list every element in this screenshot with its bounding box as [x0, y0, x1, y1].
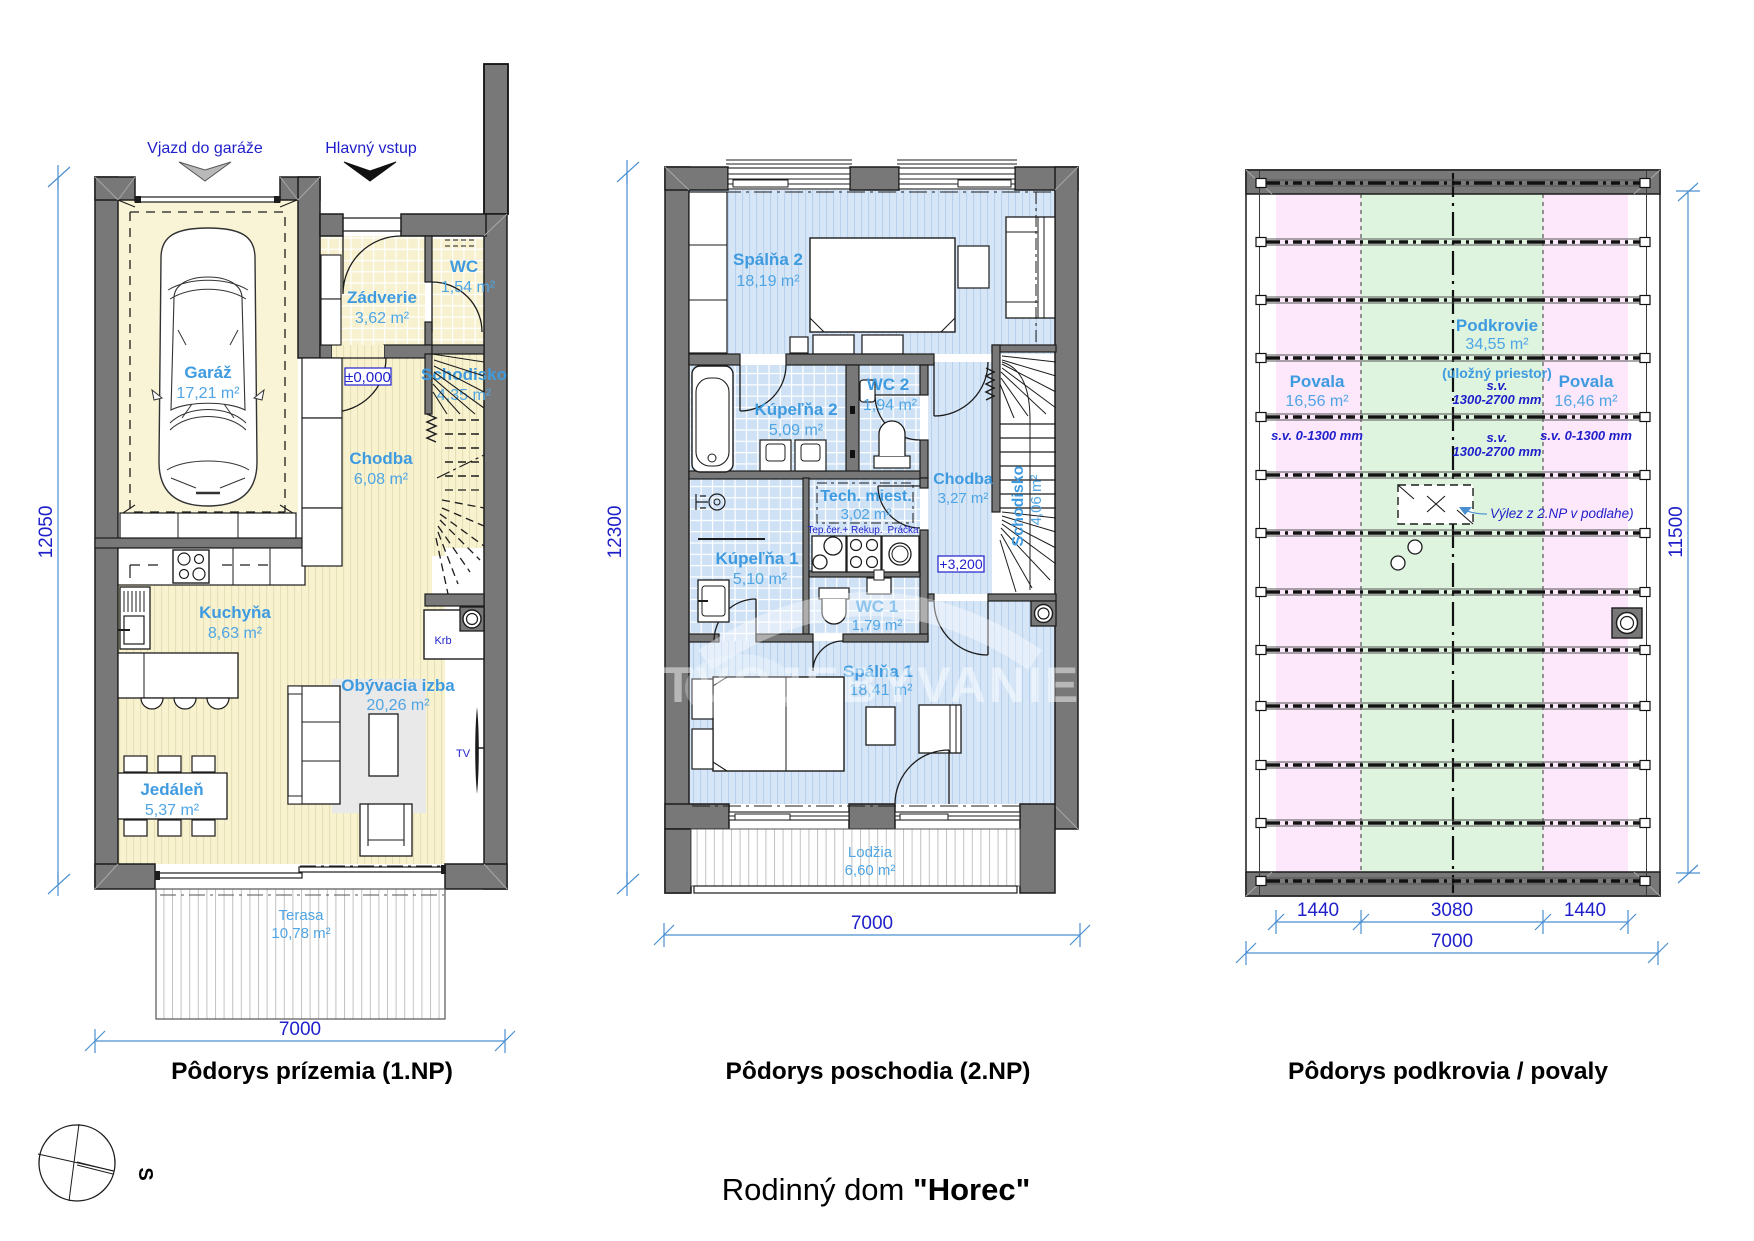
svg-text:Terasa: Terasa — [278, 907, 324, 924]
svg-text:6,08 m²: 6,08 m² — [354, 471, 409, 488]
svg-text:12050: 12050 — [36, 506, 57, 559]
svg-text:4,35 m²: 4,35 m² — [437, 387, 492, 404]
svg-text:1440: 1440 — [1297, 900, 1339, 921]
svg-text:8,63 m²: 8,63 m² — [208, 625, 263, 642]
svg-text:TVOJEBYVANIE: TVOJEBYVANIE — [663, 657, 1082, 713]
svg-text:Vjazd do garáže: Vjazd do garáže — [147, 140, 263, 157]
svg-text:±0,000: ±0,000 — [345, 369, 391, 386]
svg-text:16,56 m²: 16,56 m² — [1285, 393, 1349, 410]
svg-text:Podkrovie: Podkrovie — [1456, 316, 1538, 335]
svg-text:Tep.čer.+ Rekup.: Tep.čer.+ Rekup. — [807, 525, 882, 536]
svg-text:1,94 m²: 1,94 m² — [863, 397, 918, 414]
svg-text:6,60 m²: 6,60 m² — [845, 862, 896, 879]
svg-text:WC 2: WC 2 — [867, 375, 910, 394]
svg-text:Tech. miest.: Tech. miest. — [820, 488, 911, 505]
svg-text:Zádverie: Zádverie — [347, 288, 417, 307]
svg-text:Schodisko: Schodisko — [1010, 465, 1027, 546]
svg-text:Lodžia: Lodžia — [848, 844, 893, 861]
svg-text:Kuchyňa: Kuchyňa — [199, 603, 271, 622]
svg-text:34,55 m²: 34,55 m² — [1465, 336, 1529, 353]
svg-text:1,79 m²: 1,79 m² — [852, 617, 903, 634]
svg-text:Krb: Krb — [434, 635, 451, 647]
svg-text:Pôdorys poschodia (2.NP): Pôdorys poschodia (2.NP) — [726, 1058, 1031, 1085]
svg-text:5,09 m²: 5,09 m² — [769, 422, 824, 439]
svg-text:17,21 m²: 17,21 m² — [176, 385, 240, 402]
svg-text:3,62 m²: 3,62 m² — [355, 310, 410, 327]
svg-text:7000: 7000 — [851, 913, 893, 934]
svg-text:TV: TV — [456, 748, 471, 760]
svg-text:1,54 m²: 1,54 m² — [441, 279, 496, 296]
svg-text:Pôdorys prízemia (1.NP): Pôdorys prízemia (1.NP) — [171, 1058, 453, 1085]
svg-text:Pôdorys podkrovia / povaly: Pôdorys podkrovia / povaly — [1288, 1058, 1608, 1085]
svg-text:Práčka: Práčka — [887, 525, 919, 536]
svg-text:Jedáleň: Jedáleň — [140, 780, 203, 799]
svg-text:WC: WC — [450, 257, 478, 276]
svg-text:1440: 1440 — [1564, 900, 1606, 921]
svg-text:7000: 7000 — [1431, 931, 1473, 952]
svg-text:20,26 m²: 20,26 m² — [366, 697, 430, 714]
svg-text:Povala: Povala — [1559, 372, 1614, 391]
svg-text:+3,200: +3,200 — [939, 556, 982, 572]
svg-text:Hlavný vstup: Hlavný vstup — [325, 140, 417, 157]
svg-text:Kúpeľňa 2: Kúpeľňa 2 — [754, 400, 837, 419]
svg-text:s.v.: s.v. — [1487, 378, 1508, 393]
svg-text:Chodba: Chodba — [349, 449, 413, 468]
svg-text:S: S — [134, 1167, 156, 1180]
svg-text:18,19 m²: 18,19 m² — [736, 273, 800, 290]
svg-text:12300: 12300 — [605, 506, 626, 559]
svg-text:4,06 m²: 4,06 m² — [1028, 475, 1045, 526]
svg-text:3,02 m²: 3,02 m² — [841, 506, 892, 523]
svg-text:10,78 m²: 10,78 m² — [271, 925, 330, 942]
svg-text:s.v. 0-1300 mm: s.v. 0-1300 mm — [1271, 428, 1363, 443]
svg-text:s.v. 0-1300 mm: s.v. 0-1300 mm — [1540, 428, 1632, 443]
svg-text:3,27 m²: 3,27 m² — [938, 490, 989, 507]
svg-text:16,46 m²: 16,46 m² — [1554, 393, 1618, 410]
svg-text:5,10 m²: 5,10 m² — [733, 571, 788, 588]
svg-text:1300-2700 mm: 1300-2700 mm — [1453, 392, 1542, 407]
svg-text:Rodinný dom "Horec": Rodinný dom "Horec" — [722, 1172, 1031, 1207]
svg-text:7000: 7000 — [279, 1019, 321, 1040]
svg-text:Výlez z 2.NP v podlahe): Výlez z 2.NP v podlahe) — [1490, 506, 1634, 521]
svg-text:Kúpeľňa 1: Kúpeľňa 1 — [715, 549, 798, 568]
svg-text:Garáž: Garáž — [184, 363, 231, 382]
svg-text:Spálňa 2: Spálňa 2 — [733, 250, 803, 269]
svg-text:1300-2700 mm: 1300-2700 mm — [1453, 444, 1542, 459]
svg-text:s.v.: s.v. — [1487, 430, 1508, 445]
svg-text:Povala: Povala — [1290, 372, 1345, 391]
svg-text:3080: 3080 — [1431, 900, 1473, 921]
svg-text:11500: 11500 — [1666, 506, 1687, 557]
svg-text:Chodba: Chodba — [933, 471, 993, 488]
svg-text:Obývacia izba: Obývacia izba — [341, 676, 455, 695]
svg-text:5,37 m²: 5,37 m² — [145, 802, 200, 819]
